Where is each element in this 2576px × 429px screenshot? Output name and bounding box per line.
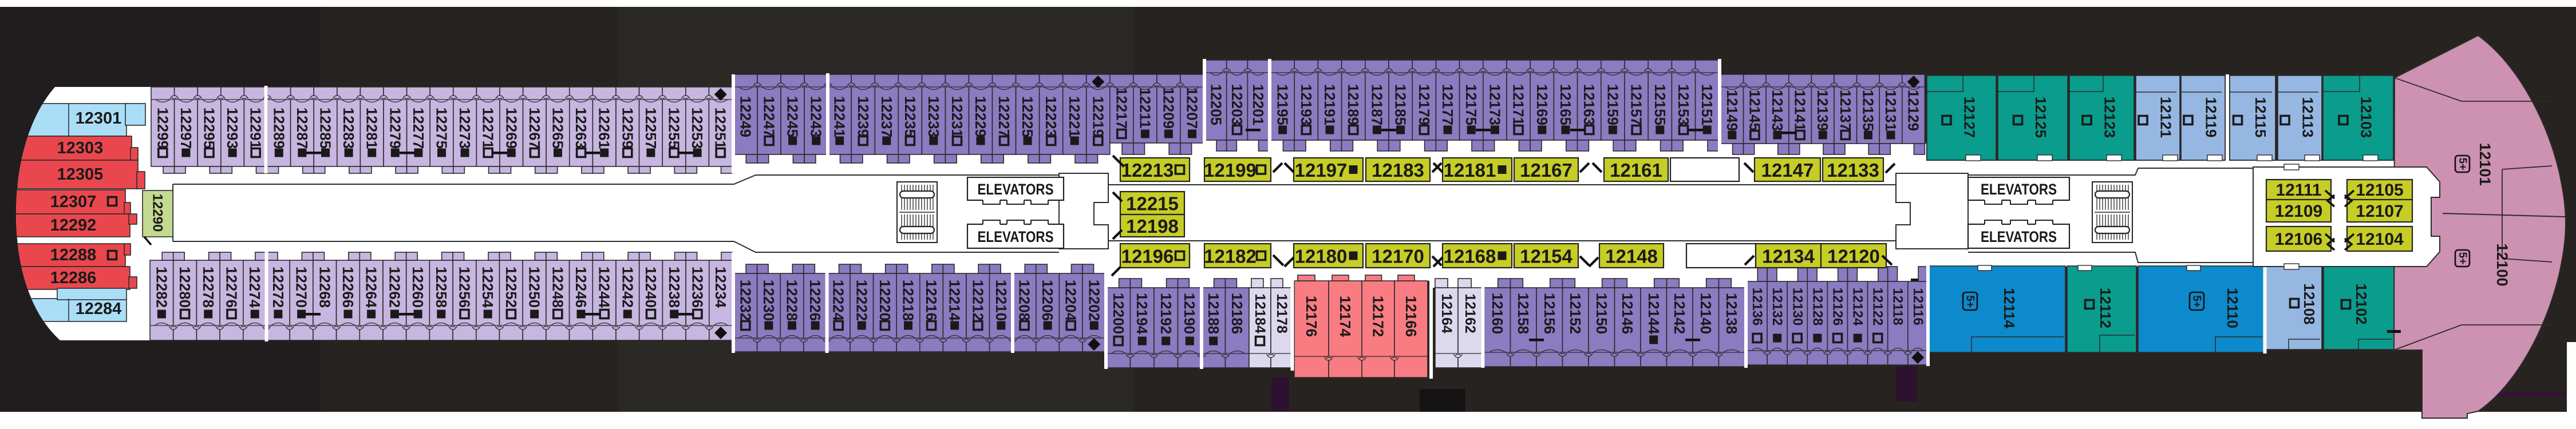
svg-text:12169: 12169 (1534, 84, 1551, 125)
svg-text:12266: 12266 (339, 267, 357, 308)
svg-text:12222: 12222 (853, 280, 870, 321)
svg-text:12274: 12274 (246, 267, 263, 308)
svg-text:12254: 12254 (479, 267, 496, 308)
svg-text:12139: 12139 (1814, 90, 1831, 131)
svg-text:12211: 12211 (1136, 88, 1153, 129)
svg-text:12212: 12212 (969, 280, 986, 321)
svg-text:12291: 12291 (247, 108, 264, 149)
svg-text:12278: 12278 (200, 267, 217, 308)
svg-text:12275: 12275 (433, 108, 451, 149)
svg-text:12106: 12106 (2275, 230, 2322, 249)
svg-text:12145: 12145 (1746, 90, 1763, 131)
svg-text:12188: 12188 (1205, 293, 1222, 334)
svg-text:12144: 12144 (1645, 293, 1662, 335)
svg-text:12201: 12201 (1250, 84, 1267, 125)
svg-text:12147: 12147 (1761, 160, 1814, 181)
svg-text:12295: 12295 (201, 108, 218, 149)
svg-text:12110: 12110 (2224, 288, 2241, 328)
svg-text:12224: 12224 (830, 280, 847, 321)
svg-text:12149: 12149 (1724, 90, 1741, 131)
svg-text:12234: 12234 (712, 267, 729, 308)
svg-text:12150: 12150 (1593, 293, 1610, 334)
svg-text:12255: 12255 (666, 108, 683, 149)
svg-text:ELEVATORS: ELEVATORS (978, 181, 1054, 198)
svg-text:12216: 12216 (923, 280, 940, 321)
svg-text:12129: 12129 (1905, 90, 1922, 131)
svg-text:12125: 12125 (2032, 97, 2049, 138)
svg-text:12289: 12289 (270, 108, 287, 149)
svg-text:12179: 12179 (1416, 84, 1433, 125)
svg-text:12126: 12126 (1830, 288, 1846, 326)
svg-text:12130: 12130 (1789, 288, 1805, 326)
svg-text:12263: 12263 (572, 108, 590, 149)
svg-text:12115: 12115 (2252, 97, 2269, 138)
svg-text:12261: 12261 (596, 108, 613, 149)
svg-text:12239: 12239 (855, 96, 872, 137)
svg-text:12214: 12214 (946, 280, 963, 321)
svg-text:12158: 12158 (1515, 293, 1532, 334)
svg-text:12199: 12199 (1204, 160, 1257, 181)
svg-text:12160: 12160 (1489, 293, 1506, 334)
svg-text:12157: 12157 (1628, 84, 1645, 125)
svg-text:12156: 12156 (1541, 293, 1558, 334)
svg-text:12305: 12305 (57, 165, 104, 184)
svg-text:12226: 12226 (807, 280, 824, 321)
svg-text:12238: 12238 (666, 267, 683, 308)
svg-text:12204: 12204 (1062, 280, 1080, 321)
svg-text:12249: 12249 (737, 96, 754, 137)
svg-text:12241: 12241 (831, 96, 848, 137)
svg-text:12227: 12227 (995, 96, 1013, 137)
svg-text:12140: 12140 (1697, 293, 1714, 334)
svg-text:12192: 12192 (1157, 293, 1175, 334)
svg-text:12164: 12164 (1439, 293, 1455, 333)
svg-text:12112: 12112 (2097, 288, 2114, 328)
svg-text:12221: 12221 (1066, 96, 1083, 137)
svg-text:12276: 12276 (223, 267, 240, 308)
svg-text:12134: 12134 (1762, 246, 1815, 267)
svg-text:12153: 12153 (1675, 84, 1692, 125)
svg-text:12246: 12246 (572, 267, 590, 308)
svg-text:12282: 12282 (153, 267, 170, 308)
svg-text:12279: 12279 (386, 108, 404, 149)
svg-text:12166: 12166 (1402, 296, 1420, 337)
svg-text:12193: 12193 (1298, 84, 1315, 125)
svg-text:12176: 12176 (1303, 296, 1320, 337)
svg-text:12142: 12142 (1671, 293, 1688, 334)
svg-text:12118: 12118 (1890, 288, 1906, 325)
svg-text:12155: 12155 (1652, 84, 1669, 125)
svg-text:12232: 12232 (737, 280, 754, 321)
svg-text:12225: 12225 (1019, 96, 1036, 137)
svg-text:12252: 12252 (503, 267, 520, 308)
svg-text:12303: 12303 (57, 139, 104, 157)
svg-text:12163: 12163 (1581, 84, 1598, 125)
svg-text:12219: 12219 (1089, 96, 1107, 137)
svg-text:12264: 12264 (363, 267, 380, 308)
svg-text:12116: 12116 (1910, 288, 1926, 325)
svg-text:12183: 12183 (1372, 160, 1424, 181)
svg-text:12123: 12123 (2101, 97, 2119, 138)
svg-text:12217: 12217 (1113, 88, 1130, 129)
svg-text:12109: 12109 (2275, 202, 2322, 221)
svg-text:12108: 12108 (2301, 283, 2318, 324)
svg-text:12243: 12243 (808, 96, 825, 137)
svg-text:12220: 12220 (876, 280, 894, 321)
svg-text:12103: 12103 (2358, 97, 2375, 138)
svg-text:12269: 12269 (503, 108, 520, 149)
svg-text:12181: 12181 (1444, 160, 1496, 181)
svg-text:12146: 12146 (1619, 293, 1636, 334)
svg-text:12111: 12111 (2275, 181, 2321, 200)
svg-text:12240: 12240 (642, 267, 659, 308)
svg-text:12281: 12281 (364, 108, 381, 149)
svg-text:12135: 12135 (1859, 90, 1876, 131)
svg-text:12198: 12198 (1126, 216, 1179, 237)
svg-text:12288: 12288 (50, 246, 97, 264)
svg-text:12194: 12194 (1133, 293, 1151, 335)
svg-text:12251: 12251 (712, 108, 729, 149)
svg-text:12100: 12100 (2494, 243, 2511, 286)
svg-text:12286: 12286 (50, 269, 97, 287)
svg-text:12186: 12186 (1228, 293, 1246, 334)
svg-text:12202: 12202 (1085, 280, 1103, 321)
svg-text:12205: 12205 (1207, 84, 1224, 125)
svg-text:12154: 12154 (1520, 246, 1573, 267)
svg-text:12280: 12280 (176, 267, 193, 308)
svg-text:12301: 12301 (76, 109, 122, 128)
svg-text:12307: 12307 (50, 193, 97, 211)
svg-text:12256: 12256 (456, 267, 473, 308)
svg-text:12197: 12197 (1295, 160, 1348, 181)
svg-text:5+: 5+ (2191, 295, 2203, 308)
svg-text:12159: 12159 (1604, 84, 1621, 125)
svg-text:12267: 12267 (526, 108, 543, 149)
svg-text:12268: 12268 (316, 267, 333, 308)
svg-text:12231: 12231 (949, 96, 966, 137)
svg-text:12248: 12248 (549, 267, 566, 308)
svg-text:12242: 12242 (619, 267, 636, 308)
svg-text:12191: 12191 (1321, 84, 1338, 125)
svg-text:12102: 12102 (2353, 283, 2370, 324)
svg-text:12228: 12228 (784, 280, 801, 321)
svg-text:12230: 12230 (760, 280, 777, 321)
svg-text:12293: 12293 (224, 108, 241, 149)
svg-text:12152: 12152 (1567, 293, 1584, 334)
svg-text:12270: 12270 (293, 267, 310, 308)
svg-text:12262: 12262 (386, 267, 403, 308)
svg-text:12287: 12287 (294, 108, 311, 149)
svg-text:12168: 12168 (1444, 246, 1496, 267)
svg-text:12119: 12119 (2203, 97, 2220, 138)
svg-text:12175: 12175 (1463, 84, 1480, 125)
svg-text:12113: 12113 (2300, 97, 2317, 138)
svg-text:12122: 12122 (1870, 288, 1886, 326)
svg-text:12178: 12178 (1274, 293, 1290, 333)
svg-text:12233: 12233 (925, 96, 942, 137)
svg-text:12151: 12151 (1698, 84, 1716, 125)
svg-text:12161: 12161 (1610, 160, 1662, 181)
svg-text:12132: 12132 (1769, 288, 1785, 326)
svg-text:12236: 12236 (689, 267, 706, 308)
svg-text:12244: 12244 (596, 267, 613, 308)
svg-text:12143: 12143 (1769, 90, 1786, 131)
svg-text:12127: 12127 (1961, 97, 1978, 138)
svg-text:12173: 12173 (1486, 84, 1503, 125)
svg-text:12223: 12223 (1042, 96, 1060, 137)
svg-text:12137: 12137 (1837, 90, 1854, 131)
svg-text:12209: 12209 (1160, 88, 1177, 129)
svg-text:12114: 12114 (2001, 288, 2018, 328)
svg-text:12131: 12131 (1882, 90, 1899, 131)
svg-text:12272: 12272 (270, 267, 287, 308)
svg-text:12253: 12253 (689, 108, 706, 149)
svg-text:12203: 12203 (1228, 84, 1246, 125)
svg-text:12292: 12292 (50, 216, 97, 235)
svg-text:12237: 12237 (878, 96, 895, 137)
svg-text:12124: 12124 (1850, 288, 1866, 326)
svg-text:12260: 12260 (409, 267, 426, 308)
svg-text:12283: 12283 (340, 108, 357, 149)
svg-text:12104: 12104 (2356, 230, 2404, 249)
svg-text:12136: 12136 (1749, 288, 1765, 326)
svg-text:ELEVATORS: ELEVATORS (1981, 181, 2057, 198)
svg-text:12184: 12184 (1252, 293, 1268, 333)
svg-text:12133: 12133 (1827, 160, 1879, 181)
svg-text:12285: 12285 (317, 108, 334, 149)
svg-text:12284: 12284 (76, 300, 122, 318)
svg-text:12265: 12265 (550, 108, 567, 149)
svg-text:12162: 12162 (1462, 293, 1478, 333)
svg-text:5+: 5+ (2456, 252, 2468, 265)
svg-text:12101: 12101 (2476, 142, 2494, 185)
svg-text:5+: 5+ (2456, 158, 2468, 170)
svg-text:12229: 12229 (972, 96, 989, 137)
svg-text:12190: 12190 (1181, 293, 1198, 334)
svg-text:12235: 12235 (902, 96, 919, 137)
svg-text:12290: 12290 (150, 194, 165, 232)
svg-text:12148: 12148 (1605, 246, 1658, 267)
svg-text:12185: 12185 (1392, 84, 1409, 125)
svg-text:12273: 12273 (456, 108, 473, 149)
svg-text:12207: 12207 (1184, 88, 1201, 129)
svg-text:12120: 12120 (1827, 246, 1880, 267)
svg-text:12196: 12196 (1121, 246, 1174, 267)
svg-text:12195: 12195 (1274, 84, 1291, 125)
svg-text:12182: 12182 (1204, 246, 1257, 267)
svg-text:ELEVATORS: ELEVATORS (978, 228, 1054, 245)
svg-text:12171: 12171 (1510, 84, 1527, 125)
svg-text:12257: 12257 (642, 108, 659, 149)
svg-text:12172: 12172 (1370, 296, 1387, 337)
svg-text:12180: 12180 (1295, 246, 1348, 267)
svg-text:12215: 12215 (1126, 193, 1179, 214)
svg-text:5+: 5+ (1964, 295, 1976, 308)
svg-text:12213: 12213 (1121, 160, 1174, 181)
svg-text:12200: 12200 (1110, 293, 1127, 334)
svg-text:12259: 12259 (619, 108, 636, 149)
svg-text:12245: 12245 (784, 96, 801, 137)
svg-text:12210: 12210 (993, 280, 1010, 321)
svg-text:12208: 12208 (1016, 280, 1033, 321)
svg-text:12177: 12177 (1439, 84, 1456, 125)
svg-text:12167: 12167 (1520, 160, 1573, 181)
svg-text:12250: 12250 (526, 267, 543, 308)
svg-text:12174: 12174 (1337, 296, 1354, 337)
svg-text:12141: 12141 (1792, 90, 1809, 131)
svg-text:12258: 12258 (433, 267, 450, 308)
svg-text:12170: 12170 (1372, 246, 1424, 267)
svg-text:12299: 12299 (154, 108, 171, 149)
svg-text:12128: 12128 (1809, 288, 1825, 326)
svg-text:12121: 12121 (2158, 97, 2175, 138)
svg-text:12297: 12297 (177, 108, 195, 149)
svg-text:12187: 12187 (1368, 84, 1385, 125)
svg-text:12189: 12189 (1345, 84, 1362, 125)
svg-text:12271: 12271 (480, 108, 497, 149)
svg-text:12107: 12107 (2356, 202, 2403, 221)
svg-text:ELEVATORS: ELEVATORS (1981, 228, 2057, 245)
svg-text:12105: 12105 (2356, 181, 2403, 200)
svg-text:12138: 12138 (1723, 293, 1740, 334)
svg-text:12277: 12277 (410, 108, 427, 149)
svg-text:12247: 12247 (761, 96, 778, 137)
svg-text:12165: 12165 (1557, 84, 1574, 125)
svg-text:12206: 12206 (1039, 280, 1056, 321)
svg-text:12218: 12218 (900, 280, 917, 321)
